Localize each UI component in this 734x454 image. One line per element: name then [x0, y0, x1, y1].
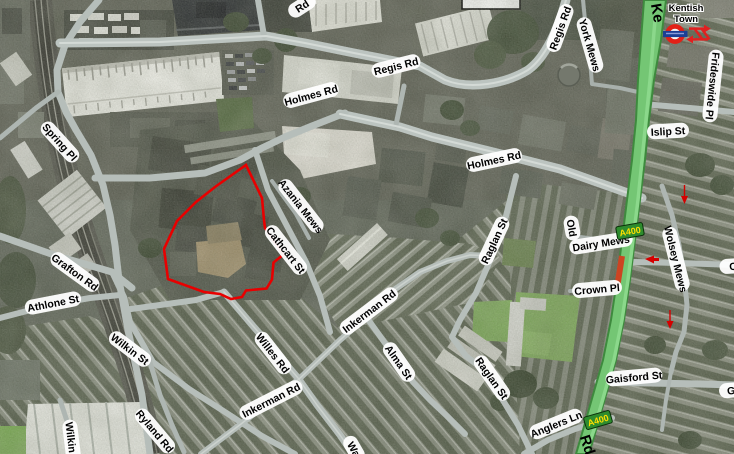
svg-text:Islip St: Islip St — [651, 125, 687, 139]
svg-text:Ke: Ke — [647, 2, 667, 24]
svg-text:Town: Town — [674, 14, 698, 25]
svg-text:Kentish: Kentish — [669, 3, 704, 14]
svg-text:C: C — [729, 261, 734, 274]
svg-text:Ga: Ga — [727, 384, 734, 397]
